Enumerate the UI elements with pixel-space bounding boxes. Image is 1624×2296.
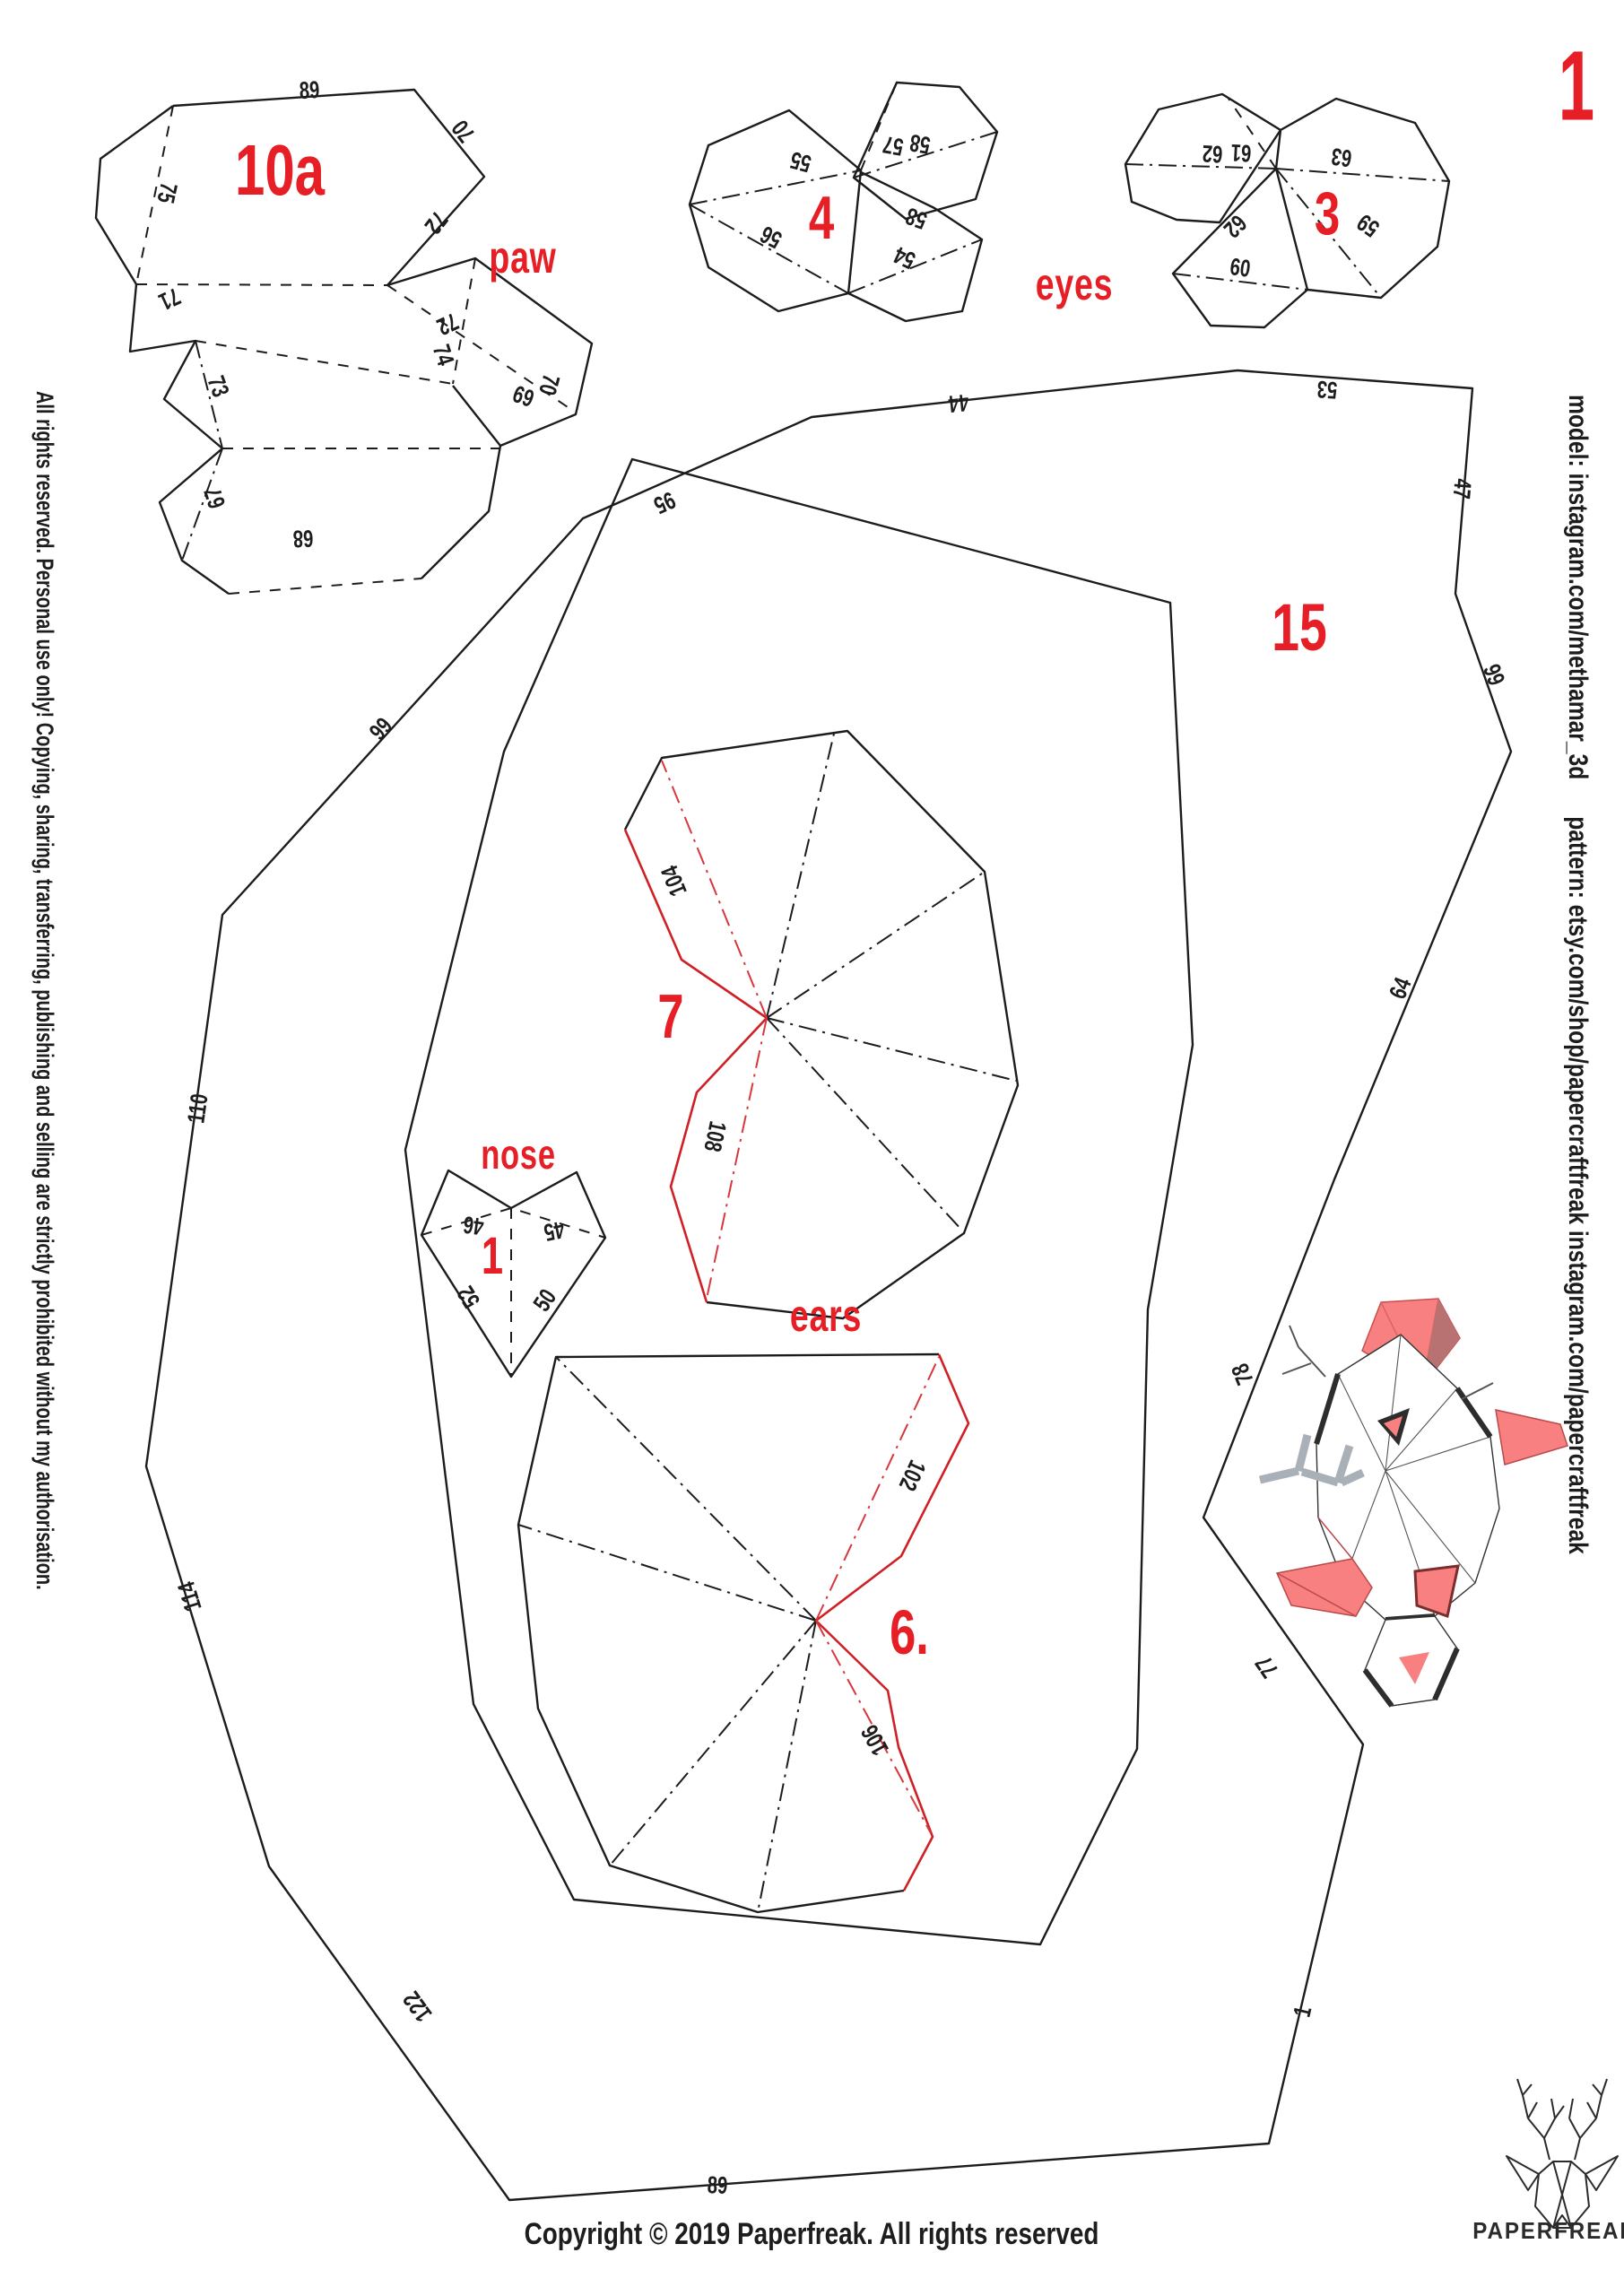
footer-copyright-text: Copyright © 2019 Paperfreak. All rights … [525,2217,1099,2252]
paperfreak-logo-deer-icon [1507,2079,1618,2228]
edge-number-label: 53 [1316,377,1338,403]
part-name-label: nose [481,1134,556,1175]
piece-1-nose-outline [421,1170,605,1377]
pattern-drawing [0,0,1624,2296]
pattern-sheet-page: 10apaw4eyes3157nose1ears6.89707275717274… [0,0,1624,2296]
piece-number-label: 7 [657,985,683,1048]
part-name-label: eyes [1036,262,1113,307]
piece-number-label: 15 [1272,595,1327,661]
edge-number-label: 61 [1230,140,1252,165]
paperfreak-logo-wordmark: PAPERFREAK [1472,2217,1624,2245]
piece-10a-outline [96,90,592,594]
edge-number-label: 57 [881,132,906,160]
edge-number-label: 44 [947,389,969,415]
deer-model-render [1260,1299,1568,1706]
piece-number-label: 6. [890,1601,929,1664]
piece-4-outline [690,83,997,321]
edge-number-label: 46 [462,1212,485,1239]
part-name-label: ears [790,1293,862,1338]
piece-3-outline [1125,94,1449,327]
piece-number-label: 4 [809,187,834,248]
edge-number-label: 60 [1229,255,1252,282]
page-number: 1 [1559,30,1594,143]
left-margin-rights-text: All rights reserved. Personal use only! … [32,391,56,1590]
piece-7-outline [625,731,1018,1318]
edge-number-label: 58 [908,130,933,158]
edge-number-label: 68 [292,526,313,551]
edge-number-label: 108 [699,1119,729,1154]
piece-number-label: 1 [482,1231,503,1283]
edge-number-label: 63 [1330,143,1353,170]
edge-number-label: 110 [184,1092,212,1125]
part-name-label: paw [489,235,556,280]
edge-number-label: 62 [1202,141,1223,166]
piece-number-label: 3 [1315,183,1340,244]
piece-number-label: 10a [235,135,325,206]
edge-number-label: 47 [1449,478,1475,500]
edge-number-label: 89 [707,2173,727,2198]
right-margin-credits-text: model: instagram.com/methamar_3d pattern… [1564,395,1591,1554]
edge-number-label: 89 [299,78,320,103]
